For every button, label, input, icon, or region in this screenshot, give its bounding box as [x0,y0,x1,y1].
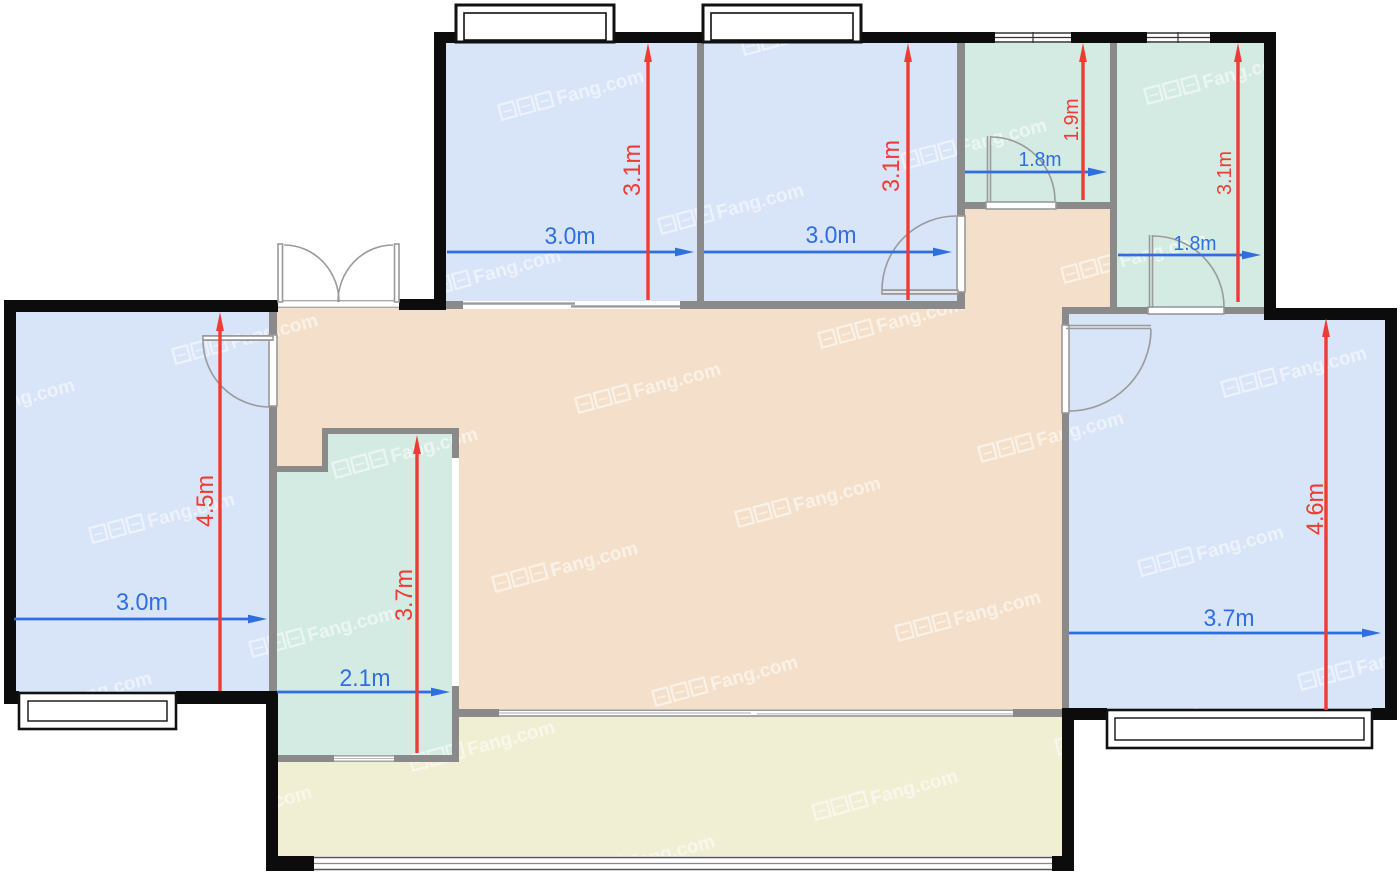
svg-text:3.0m: 3.0m [806,222,857,249]
svg-text:3.1m: 3.1m [619,144,646,196]
svg-text:3.0m: 3.0m [545,223,596,250]
svg-text:3.1m: 3.1m [1213,151,1236,195]
svg-text:3.7m: 3.7m [1204,605,1255,632]
svg-text:2.1m: 2.1m [340,665,391,692]
svg-text:4.5m: 4.5m [192,475,219,527]
svg-text:1.8m: 1.8m [1019,148,1062,171]
svg-text:1.9m: 1.9m [1060,99,1083,142]
svg-text:3.1m: 3.1m [878,140,905,192]
svg-text:3.7m: 3.7m [391,569,418,621]
svg-text:3.0m: 3.0m [116,589,168,616]
svg-text:4.6m: 4.6m [1302,483,1329,535]
svg-text:1.8m: 1.8m [1174,232,1217,255]
